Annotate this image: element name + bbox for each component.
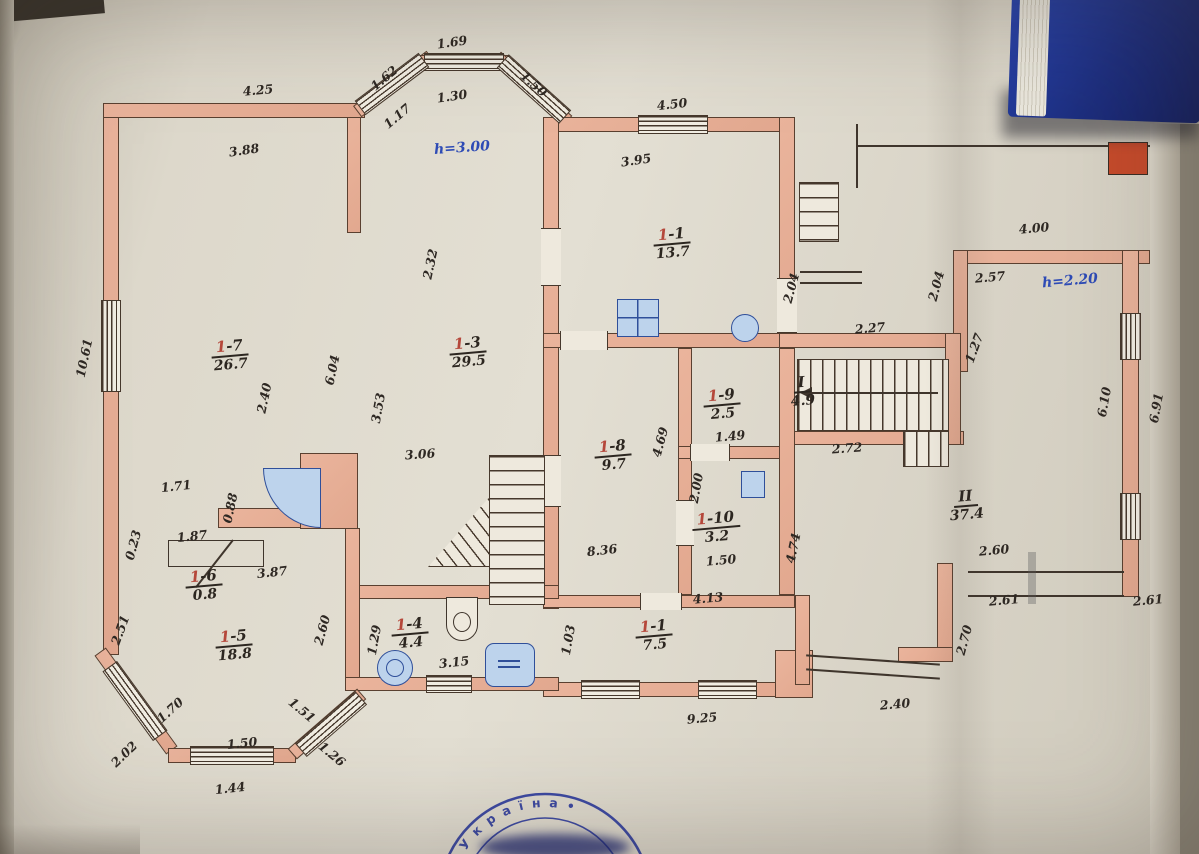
dimension-label: 3.53: [368, 392, 388, 425]
room-area: 37.4: [949, 506, 984, 525]
wall-room5-right: [345, 528, 360, 678]
room-number-black: -7: [225, 336, 243, 355]
desk-corner-top-left: [0, 0, 105, 23]
room-label: 1-113.7: [652, 222, 692, 262]
dimension-label: 3.95: [620, 150, 652, 169]
room-number-black: II: [957, 486, 973, 505]
entry-steps: [799, 182, 839, 242]
dimension-label: 1.70: [154, 694, 187, 726]
room-label: II37.4: [947, 485, 984, 525]
room-number: 1-9: [702, 386, 741, 407]
dimension-label: 1.03: [558, 624, 578, 657]
dimension-label: 2.27: [854, 319, 886, 337]
dimension-label: 1.51: [286, 694, 319, 725]
window-bath: [426, 675, 472, 693]
desk-right: [1180, 124, 1199, 854]
room-label: 1-518.8: [214, 624, 254, 664]
dimension-label: 10.61: [73, 337, 96, 378]
room-label: 1-17.5: [634, 614, 674, 654]
dimension-label: 1.17: [381, 100, 414, 131]
room-number: 1-8: [593, 437, 632, 458]
stair-understair-hatch: [428, 488, 489, 567]
pencil-smudge: [1028, 552, 1036, 604]
door-room9-bottom: [690, 444, 730, 461]
stair-main-flight: [489, 455, 545, 605]
bottom-left-shade: [0, 824, 140, 854]
ceiling-height-note: h=2.20: [1041, 271, 1098, 292]
dimension-label: 2.32: [419, 248, 440, 281]
room-number: I: [792, 374, 811, 393]
shower-mark: [498, 660, 520, 662]
window-left-wall: [101, 300, 121, 392]
stair-walkline: [812, 392, 938, 394]
dimension-label: 2.57: [974, 268, 1006, 286]
room-area: 7.5: [636, 635, 674, 654]
room-label: 1-329.5: [448, 331, 488, 371]
room-number: 1-6: [184, 567, 223, 588]
room-number-black: -9: [717, 385, 735, 404]
shower-tray-icon: [485, 643, 535, 687]
window-bottom-1: [581, 680, 640, 699]
dimension-label: 3.88: [228, 140, 260, 159]
dimension-label: 2.60: [311, 613, 333, 646]
room-number: 1-1: [634, 617, 673, 638]
room-number-black: -10: [706, 507, 735, 527]
dimension-label: 4.69: [649, 425, 671, 458]
dimension-label: 4.13: [692, 589, 724, 607]
dimension-label: 3.15: [438, 653, 470, 671]
room-area: 4.9: [790, 392, 816, 410]
room-number-black: -1: [649, 616, 667, 635]
sink-icon: [731, 314, 759, 342]
window-room11-top: [638, 115, 708, 134]
window-bay2-left: [102, 661, 167, 741]
ceiling-height-note: h=3.00: [434, 138, 491, 158]
stove-icon: [617, 299, 659, 337]
room-area: 13.7: [654, 243, 692, 262]
wall-stub-bay: [347, 117, 361, 233]
room-area: 29.5: [450, 352, 488, 371]
door-mid-bottom: [640, 593, 682, 610]
washbasin-inner: [386, 659, 404, 677]
room-area: 26.7: [212, 355, 250, 374]
dimension-label: 0.23: [122, 528, 144, 561]
dimension-label: 2.72: [831, 439, 862, 456]
dimension-label: 2.40: [253, 382, 274, 415]
wall-wing-right: [1122, 250, 1139, 597]
water-heater-icon: [741, 471, 765, 498]
window-bottom-2: [698, 680, 757, 699]
dimension-label: 3.06: [404, 445, 435, 462]
dimension-label: 8.36: [586, 541, 618, 559]
window-wing-upper: [1120, 313, 1141, 360]
dimension-label: 1.44: [214, 779, 246, 797]
dimension-label: 1.30: [436, 86, 468, 105]
dimension-label: 1.26: [316, 738, 349, 769]
window-bay-top: [424, 53, 504, 71]
dimension-label: 1.71: [160, 477, 192, 495]
dimension-label: 6.04: [321, 354, 342, 387]
room-number-black: -6: [199, 566, 217, 585]
dimension-label: 4.25: [242, 81, 274, 99]
dimension-label: 1.50: [705, 551, 737, 569]
dimension-label: 2.40: [879, 695, 911, 713]
dimension-label: 2.61: [1132, 591, 1164, 609]
threshold-line-a: [800, 271, 862, 273]
room-number-black: -3: [463, 333, 481, 352]
room-area: 4.4: [392, 633, 430, 652]
stamp-smudge: [480, 834, 630, 854]
window-bay-left: [355, 53, 430, 116]
room-area: 0.8: [186, 585, 224, 604]
threshold-line-b: [800, 282, 862, 284]
dimension-label: 2.02: [108, 738, 140, 770]
dimension-label: 6.10: [1094, 386, 1114, 419]
wall-hall-left: [543, 117, 559, 609]
room-number: 1-4: [390, 615, 429, 636]
door-hall-to-room1: [541, 228, 561, 286]
room-number-black: -5: [229, 626, 247, 645]
dimension-label: 1.50: [226, 734, 258, 752]
dimension-label: 1.29: [364, 624, 384, 657]
dimension-label: 1.49: [714, 427, 746, 445]
room-label: I4.9: [788, 371, 815, 410]
dimension-label: 1.87: [176, 527, 208, 545]
room-label: 1-726.7: [210, 334, 250, 374]
wall-room11b-right: [795, 595, 810, 685]
dimension-label: 2.61: [988, 591, 1020, 609]
dimension-label: 4.50: [656, 95, 688, 113]
room-label: 1-44.4: [390, 612, 430, 652]
photo-of-floor-plan: 4.251.621.691.301.171.504.503.883.9510.6…: [0, 0, 1199, 854]
dimension-label: 4.00: [1018, 219, 1050, 237]
room-number-black: -1: [667, 224, 685, 243]
room-label: 1-60.8: [184, 564, 224, 604]
dimension-label: 3.87: [256, 563, 288, 581]
dimension-label: 9.25: [686, 709, 718, 727]
dimension-label: 2.60: [978, 541, 1010, 559]
room-label: 1-89.7: [593, 434, 633, 474]
corridor-line-b: [806, 668, 940, 679]
wall-room8-right: [678, 348, 692, 595]
room-area: 9.7: [595, 455, 633, 474]
door-room1-bottom: [560, 331, 608, 350]
wall-top-left: [103, 103, 365, 118]
page-edge-right: [1150, 124, 1180, 854]
dimension-label: 1.69: [436, 32, 468, 51]
room-number: II: [953, 488, 979, 508]
red-chip: [1108, 142, 1148, 175]
room-area: 18.8: [216, 645, 254, 664]
tick-vertical: [856, 124, 858, 188]
room-number-black: I: [797, 373, 806, 392]
desk-strip-left: [0, 0, 14, 854]
room-label: 1-92.5: [702, 383, 742, 423]
book-pages: [1016, 0, 1050, 116]
room-number-black: -8: [608, 436, 626, 455]
room-number-black: -4: [405, 614, 423, 633]
window-wing-lower: [1120, 493, 1141, 540]
shower-mark2: [498, 666, 520, 668]
room-area: 2.5: [704, 404, 742, 423]
room-label: 1-103.2: [691, 506, 742, 547]
toilet-bowl: [453, 612, 471, 632]
page-shade-fold: [925, 0, 995, 854]
